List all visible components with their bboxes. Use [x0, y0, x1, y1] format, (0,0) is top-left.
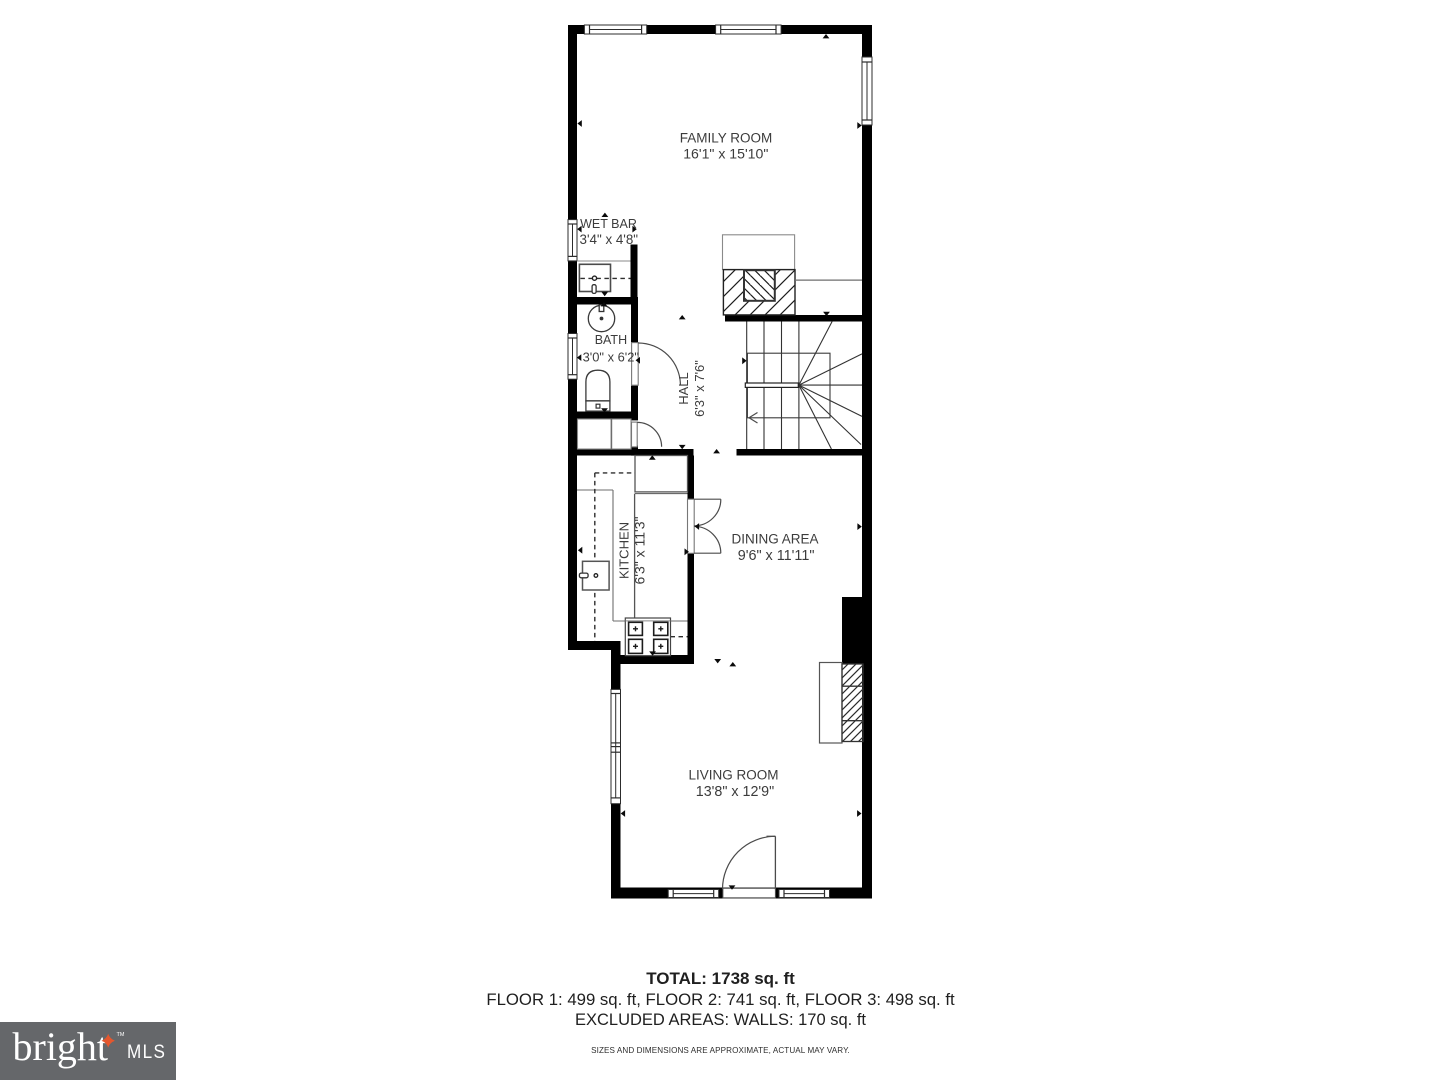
- svg-text:HALL: HALL: [676, 372, 691, 405]
- svg-text:16'1" x 15'10": 16'1" x 15'10": [683, 146, 768, 162]
- svg-text:3'0" x 6'2": 3'0" x 6'2": [583, 350, 640, 365]
- svg-text:6'3" x 7'6": 6'3" x 7'6": [692, 360, 707, 417]
- svg-text:3'4" x 4'8": 3'4" x 4'8": [580, 232, 639, 247]
- svg-text:WET BAR: WET BAR: [580, 217, 637, 231]
- svg-text:KITCHEN: KITCHEN: [616, 522, 631, 579]
- svg-text:BATH: BATH: [595, 333, 627, 347]
- svg-text:LIVING ROOM: LIVING ROOM: [688, 768, 778, 783]
- svg-text:FAMILY ROOM: FAMILY ROOM: [680, 131, 773, 146]
- svg-text:13'8" x 12'9": 13'8" x 12'9": [696, 784, 774, 800]
- svg-text:6'3" x 11'3": 6'3" x 11'3": [631, 516, 647, 584]
- svg-text:9'6" x 11'11": 9'6" x 11'11": [738, 548, 815, 564]
- svg-text:DINING AREA: DINING AREA: [731, 532, 818, 547]
